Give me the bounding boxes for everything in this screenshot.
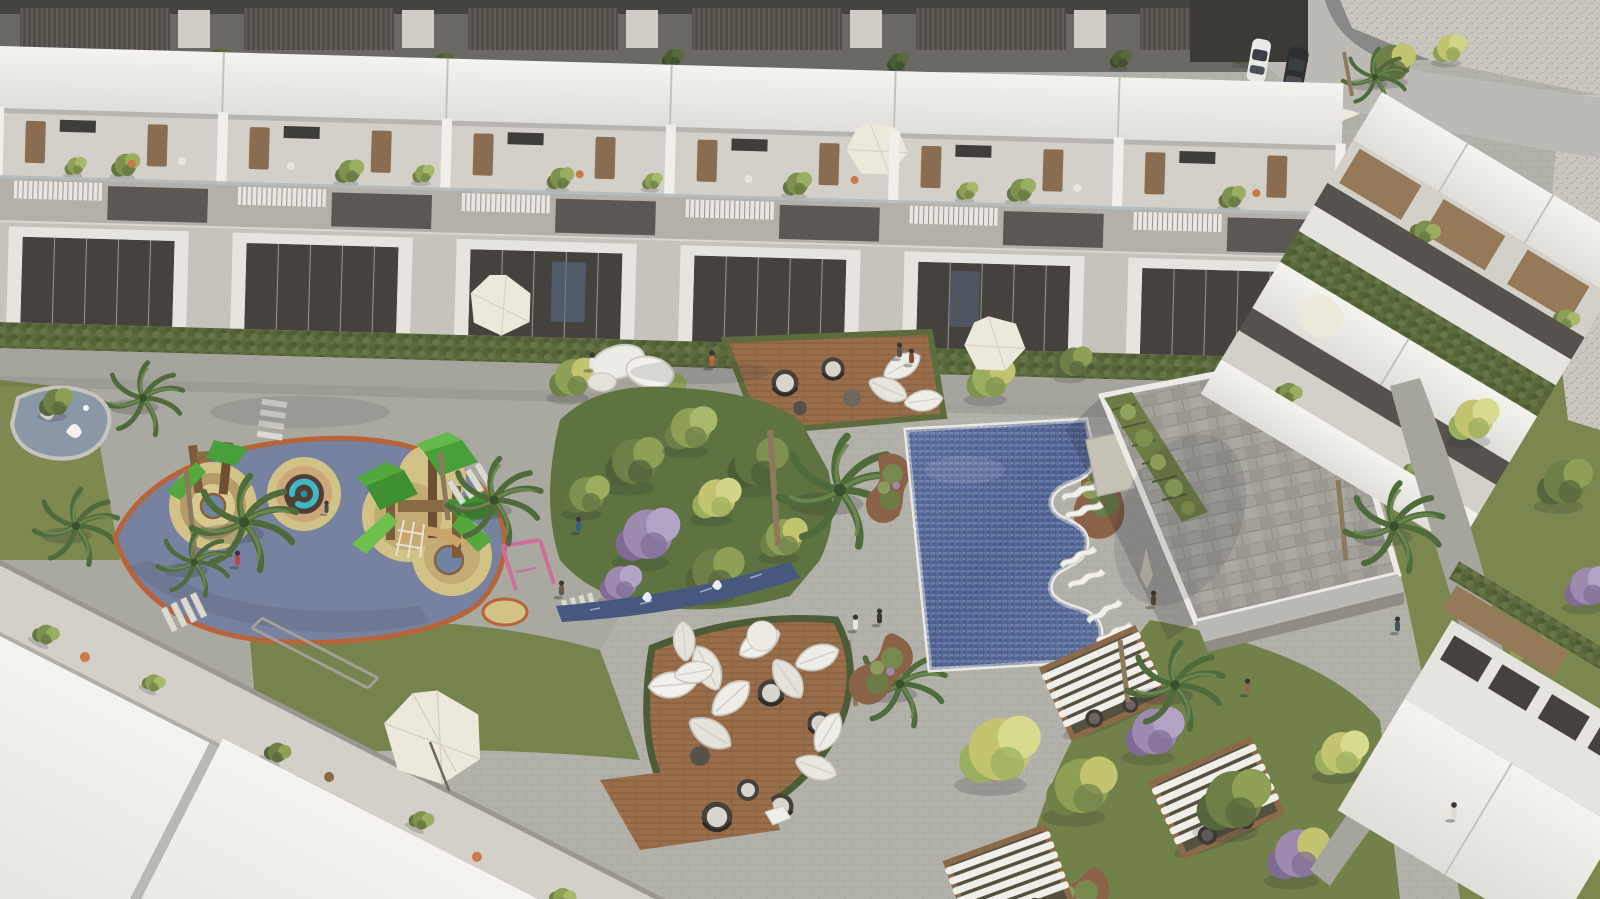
daybed bbox=[702, 802, 733, 833]
sand-pocket bbox=[483, 599, 527, 625]
background-units bbox=[20, 8, 1250, 50]
daybed bbox=[772, 370, 799, 397]
pool-mosaic bbox=[906, 420, 1101, 670]
ornamental-pond bbox=[12, 387, 109, 458]
daybed bbox=[821, 357, 844, 380]
aerial-render bbox=[0, 0, 1600, 899]
pouf bbox=[793, 401, 807, 415]
scene-canvas bbox=[0, 0, 1600, 899]
round-parasol bbox=[747, 621, 777, 651]
pouf bbox=[690, 746, 710, 766]
pouf bbox=[843, 389, 861, 407]
